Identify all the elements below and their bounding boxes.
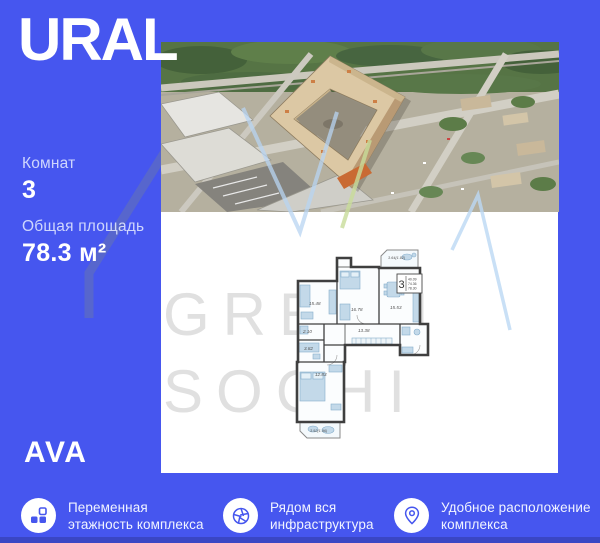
stamp-rooms: 3 — [398, 279, 404, 291]
feature-line: комплекса — [441, 517, 508, 532]
listing-card: GREEN SOCHI — [0, 0, 600, 543]
features-row: Переменная этажность комплекса Рядом вся… — [0, 494, 600, 538]
feature-text: Переменная этажность комплекса — [68, 499, 204, 533]
aerial-photo-illustration — [161, 42, 559, 212]
developer-logo: AVA — [24, 436, 87, 470]
location-pin-icon — [394, 498, 429, 533]
blocks-icon — [21, 498, 56, 533]
rooms-fact: Комнат 3 — [22, 155, 75, 205]
stamp-row: 74.36 — [408, 282, 417, 286]
feature-line: Рядом вся — [270, 500, 336, 515]
project-logo: URAL — [18, 8, 177, 71]
floorplan-panel: GREEN SOCHI — [161, 212, 558, 473]
stamp-row: 78.30 — [408, 287, 417, 291]
stamp-row: 40.09 — [408, 278, 417, 282]
bottom-accent-strip — [0, 537, 600, 543]
feature-line: Переменная — [68, 500, 148, 515]
room-label: 15.53 — [390, 305, 402, 310]
feature-line: этажность комплекса — [68, 517, 204, 532]
plan-stamp: 3 40.09 74.36 78.30 — [397, 274, 422, 293]
room-label: 13.38 — [358, 328, 370, 333]
room-label: 12.83 — [315, 372, 327, 377]
feature-variable-height: Переменная этажность комплекса — [21, 498, 204, 533]
area-label: Общая площадь — [22, 218, 144, 236]
area-fact: Общая площадь 78.3 м² — [22, 218, 144, 268]
room-label: 3.82 — [304, 346, 313, 351]
area-value: 78.3 м² — [22, 239, 144, 268]
rooms-value: 3 — [22, 176, 75, 205]
room-label: 2.10 — [302, 329, 312, 334]
feature-text: Удобное расположение комплекса — [441, 499, 591, 533]
feature-line: инфраструктура — [270, 517, 374, 532]
room-label: 15.48 — [309, 301, 321, 306]
room-label: 3.64(1.82) — [388, 256, 406, 260]
room-label: 16.78 — [351, 307, 363, 312]
aerial-photo — [161, 42, 559, 212]
aperture-icon — [223, 498, 258, 533]
feature-location: Удобное расположение комплекса — [394, 498, 591, 533]
feature-line: Удобное расположение — [441, 500, 591, 515]
feature-text: Рядом вся инфраструктура — [270, 499, 374, 533]
rooms-label: Комнат — [22, 155, 75, 173]
floorplan-drawing: 3 40.09 74.36 78.30 15.48 16.78 15.53 13… — [161, 212, 558, 473]
room-label: 3.92(1.96) — [310, 429, 328, 433]
feature-infrastructure: Рядом вся инфраструктура — [223, 498, 374, 533]
